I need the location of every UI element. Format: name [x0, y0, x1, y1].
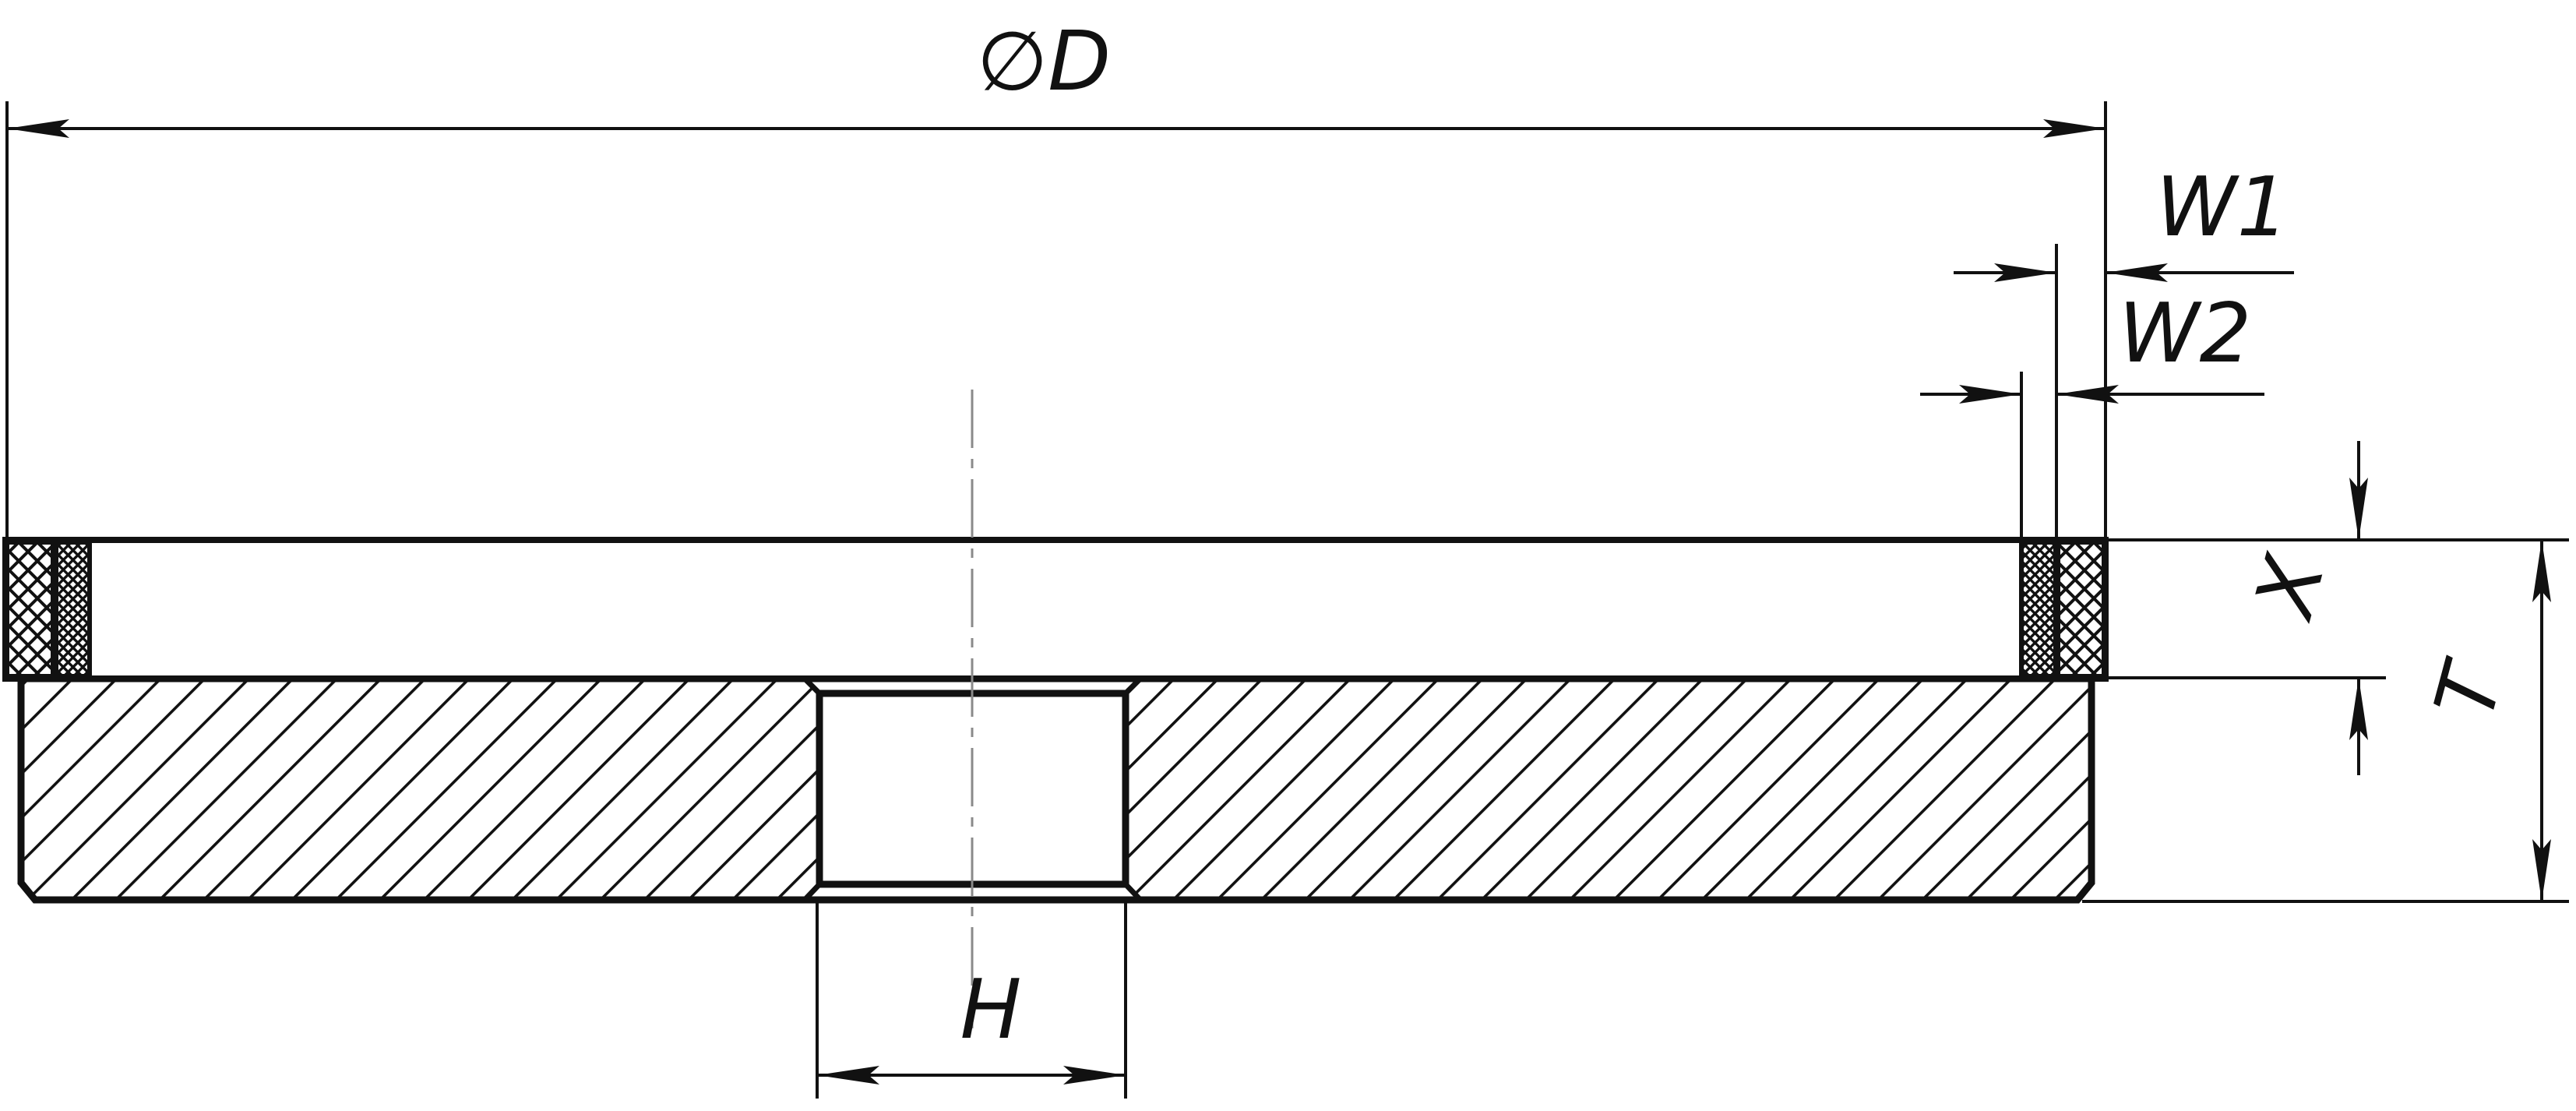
abrasive-segment-left-outer	[7, 542, 53, 676]
label-T: T	[2417, 651, 2523, 728]
label-W2: W2	[2119, 286, 2252, 381]
rim-outline	[5, 540, 2106, 679]
abrasive-rim	[5, 540, 2106, 679]
label-W1: W1	[2156, 160, 2289, 255]
label-T-group: T	[2417, 651, 2523, 728]
label-H: H	[960, 962, 1022, 1057]
label-diameter-D: ∅D	[977, 14, 1111, 109]
label-X-group: X	[2236, 545, 2343, 630]
dimension-W2: W2	[1920, 286, 2264, 541]
abrasive-segment-left-inner	[56, 542, 90, 676]
drawing-canvas: ∅D W1 W2 X T	[0, 0, 2576, 1111]
wheel-body	[21, 679, 2091, 900]
abrasive-segment-right-outer	[2058, 542, 2104, 676]
label-X: X	[2236, 545, 2343, 630]
abrasive-segment-right-inner	[2021, 542, 2056, 676]
dimension-diameter-D: ∅D	[7, 14, 2106, 541]
grinding-wheel-section-drawing: ∅D W1 W2 X T	[0, 0, 2576, 1111]
